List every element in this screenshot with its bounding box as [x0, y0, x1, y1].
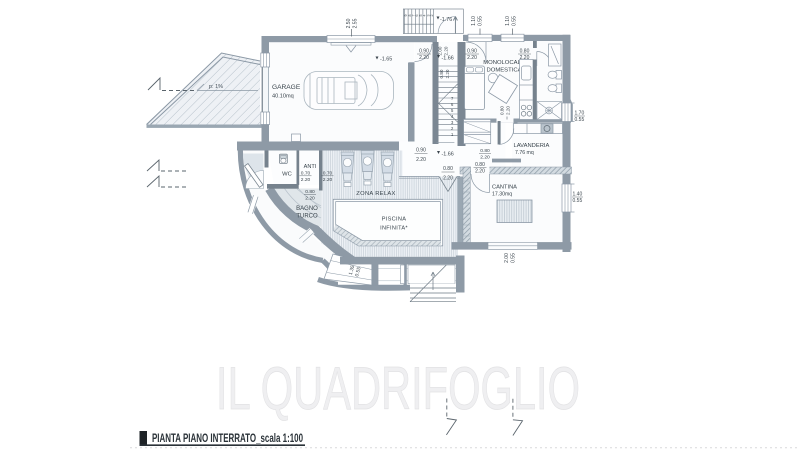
- svg-text:p: 1%: p: 1%: [209, 84, 223, 90]
- svg-text:-1.65: -1.65: [380, 57, 392, 63]
- svg-text:2.00: 2.00: [438, 46, 443, 55]
- svg-text:2.20: 2.20: [301, 177, 311, 183]
- svg-text:1.40: 1.40: [573, 192, 583, 198]
- svg-text:0.90: 0.90: [467, 49, 477, 55]
- svg-text:0.55: 0.55: [478, 16, 484, 26]
- svg-text:40.10mq: 40.10mq: [272, 94, 294, 100]
- svg-text:2.20: 2.20: [506, 106, 511, 115]
- svg-text:0.80: 0.80: [305, 189, 315, 195]
- svg-text:CANTINA: CANTINA: [492, 185, 517, 191]
- svg-text:PISCINA: PISCINA: [382, 217, 406, 223]
- svg-text:0.90: 0.90: [416, 148, 426, 154]
- svg-text:2: 2: [430, 15, 434, 17]
- svg-text:LAVANDERIA: LAVANDERIA: [514, 143, 550, 149]
- svg-text:0.80: 0.80: [439, 69, 444, 78]
- svg-text:DOMESTICA: DOMESTICA: [486, 68, 521, 74]
- svg-text:17.30mq: 17.30mq: [492, 192, 512, 198]
- svg-text:-1.66: -1.66: [442, 152, 454, 158]
- svg-text:2.20: 2.20: [444, 46, 449, 55]
- svg-text:BAGNO: BAGNO: [296, 206, 318, 212]
- svg-text:GARAGE: GARAGE: [272, 84, 301, 91]
- svg-text:-1.76: -1.76: [440, 17, 452, 23]
- svg-text:2.20: 2.20: [305, 196, 315, 202]
- svg-text:1.70: 1.70: [575, 111, 585, 117]
- svg-text:2.20: 2.20: [520, 55, 530, 61]
- svg-text:2.20: 2.20: [323, 177, 333, 183]
- svg-text:2.20: 2.20: [480, 154, 490, 160]
- svg-text:MONOLOCALE: MONOLOCALE: [483, 60, 525, 66]
- svg-text:PIANTA PIANO INTERRATO_scala 1: PIANTA PIANO INTERRATO_scala 1:100: [152, 433, 303, 445]
- svg-text:0.80: 0.80: [475, 162, 485, 168]
- svg-text:WC: WC: [282, 172, 292, 178]
- svg-text:0.55: 0.55: [512, 16, 518, 26]
- svg-text:0.70: 0.70: [323, 170, 333, 176]
- svg-text:2.20: 2.20: [467, 55, 477, 61]
- svg-text:0.55: 0.55: [575, 117, 585, 123]
- svg-text:TURCO: TURCO: [296, 214, 318, 220]
- svg-text:2.20: 2.20: [443, 176, 453, 182]
- svg-text:1.10: 1.10: [505, 16, 511, 26]
- svg-text:0.80: 0.80: [443, 166, 453, 172]
- svg-text:0.55: 0.55: [511, 253, 517, 263]
- svg-text:0.80: 0.80: [500, 106, 505, 115]
- svg-text:2.20: 2.20: [475, 169, 485, 175]
- svg-text:INFINITA*: INFINITA*: [380, 226, 408, 232]
- svg-text:2.20: 2.20: [416, 157, 426, 163]
- svg-text:2.50: 2.50: [346, 18, 352, 28]
- svg-text:7.76 mq: 7.76 mq: [515, 150, 534, 156]
- svg-text:0.90: 0.90: [419, 49, 429, 55]
- svg-text:IL QUADRIFOGLIO: IL QUADRIFOGLIO: [216, 355, 580, 422]
- svg-text:0.70: 0.70: [301, 170, 311, 176]
- svg-text:2.20: 2.20: [445, 69, 450, 78]
- svg-text:0.55: 0.55: [573, 198, 583, 204]
- svg-text:2.20: 2.20: [419, 55, 429, 61]
- svg-text:ZONA RELAX: ZONA RELAX: [356, 191, 395, 197]
- svg-text:ANTI: ANTI: [304, 164, 317, 170]
- svg-text:0.80: 0.80: [480, 148, 490, 154]
- svg-text:2.55: 2.55: [353, 18, 359, 28]
- svg-text:0.80: 0.80: [520, 49, 530, 55]
- svg-text:1.10: 1.10: [471, 16, 477, 26]
- svg-text:2.00: 2.00: [504, 253, 510, 263]
